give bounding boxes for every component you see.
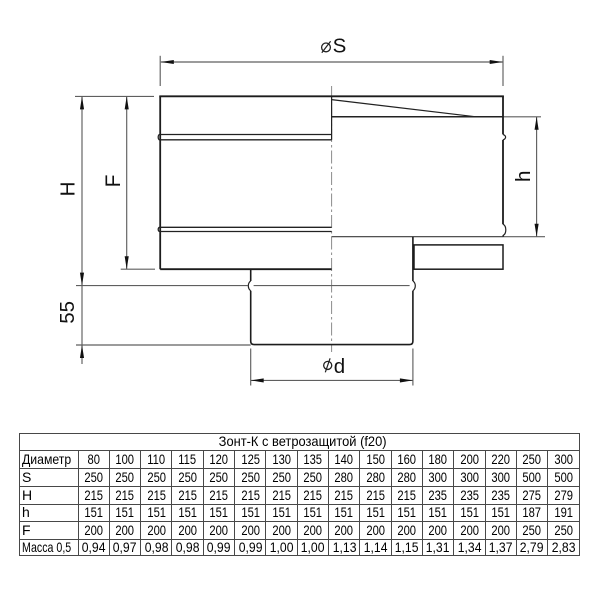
svg-text:S: S (333, 34, 347, 57)
svg-text:d: d (334, 355, 345, 378)
svg-text:h: h (512, 171, 535, 182)
svg-text:55: 55 (56, 301, 79, 324)
svg-text:H: H (57, 182, 80, 197)
svg-text:F: F (102, 175, 125, 188)
